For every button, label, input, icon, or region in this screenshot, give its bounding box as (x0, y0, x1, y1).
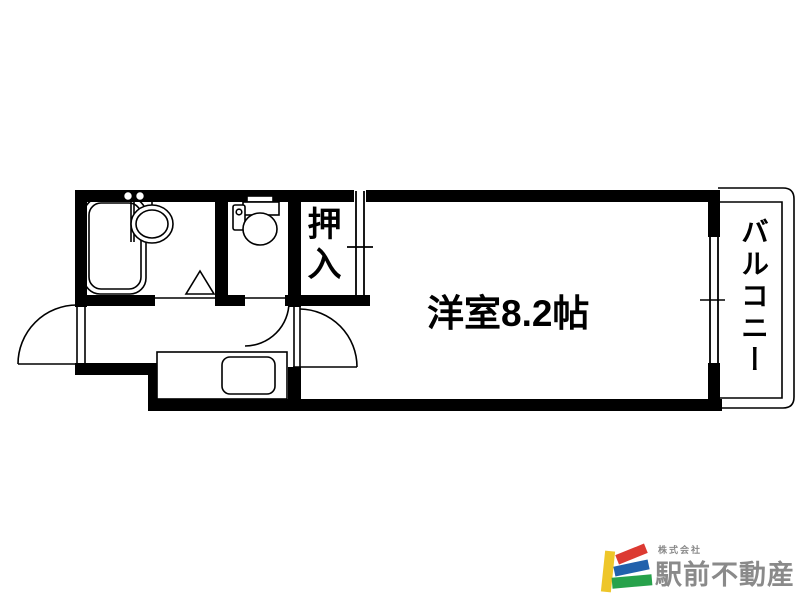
kitchen-counter-icon (157, 352, 287, 399)
toilet-icon (233, 196, 279, 245)
closet-label: 押入 (301, 206, 341, 286)
toilet-lid-button (247, 196, 273, 202)
wall-bottom-left (75, 363, 160, 375)
folding-door-triangle-icon (186, 271, 214, 294)
logo-company-name: 駅前不動産 (655, 553, 795, 592)
bathtub-icon (84, 192, 146, 295)
wall-toilet-closet (288, 196, 301, 307)
toilet-bowl (243, 213, 277, 245)
closet-sliding-door (347, 191, 373, 295)
main-room-door (293, 307, 357, 367)
wall-bath-bottom (75, 295, 155, 306)
floor-plan-drawing (0, 0, 800, 600)
wall-closet-bottom (285, 295, 370, 306)
toilet-door-swing-arc (245, 302, 289, 346)
floor-plan-image: 押入 洋室8.2帖 バルコニー 株式会社 駅前不動産 (0, 0, 800, 600)
entrance-door (18, 305, 85, 364)
wall-bath-toilet (215, 196, 228, 306)
washbasin-icon (131, 196, 173, 243)
wall-top-left (75, 190, 354, 202)
wall-right-top (708, 190, 720, 237)
wall-toilet-bottom-stub (215, 295, 245, 306)
wall-top-right (366, 190, 720, 202)
wall-right-bottom (708, 363, 720, 411)
wall-below-hall-door (288, 367, 301, 411)
balcony-window (700, 237, 725, 363)
main-room-label: 洋室8.2帖 (427, 283, 589, 337)
main-room-door-swing-arc (300, 309, 357, 367)
faucet-handle (124, 192, 133, 201)
bathroom-door (155, 271, 215, 298)
company-logo: 株式会社 駅前不動産 (598, 538, 798, 596)
entrance-door-swing-arc (18, 305, 77, 364)
balcony-label: バルコニー (733, 217, 773, 377)
toilet-door (245, 298, 289, 346)
logo-green-bar (612, 574, 653, 588)
wall-bottom-main (148, 399, 722, 411)
faucet-handle (136, 192, 145, 201)
